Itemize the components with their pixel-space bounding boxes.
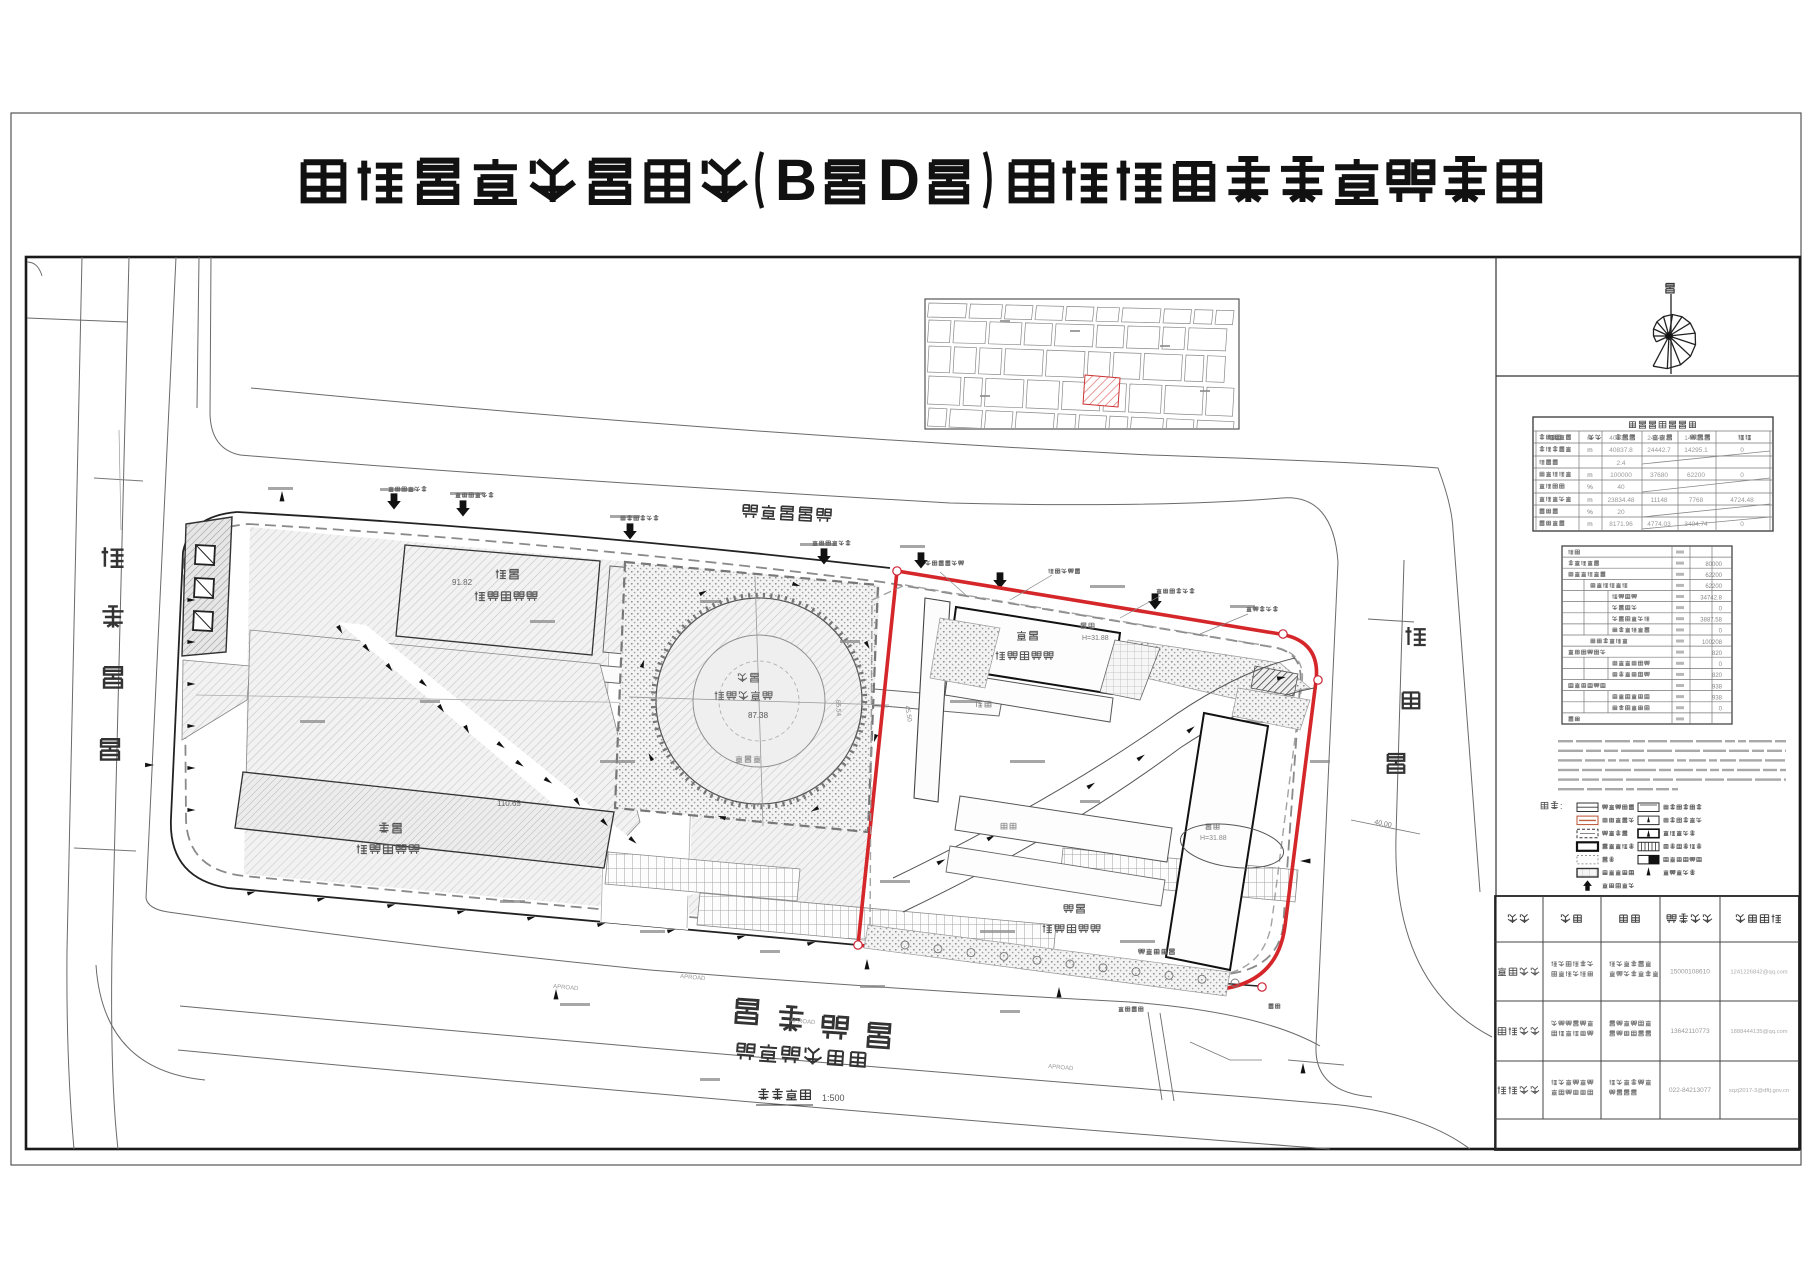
svg-text:0: 0 [1740,472,1744,479]
svg-text:87.38: 87.38 [748,711,769,720]
svg-text:3887.58: 3887.58 [1700,618,1722,624]
svg-text:m: m [1587,521,1592,528]
svg-text:24442.7: 24442.7 [1647,435,1671,442]
svg-text:80000: 80000 [1705,562,1722,568]
svg-text:0: 0 [1740,435,1744,442]
svg-text:0: 0 [1740,521,1744,528]
svg-text:0: 0 [1740,447,1744,454]
svg-text:20: 20 [1617,509,1625,516]
svg-text:938: 938 [1712,684,1723,690]
svg-text:37680: 37680 [1650,472,1668,479]
svg-text:11148: 11148 [1650,497,1667,504]
svg-text:1:500: 1:500 [822,1093,845,1103]
svg-text:820: 820 [1712,651,1723,657]
svg-text:13642110773: 13642110773 [1670,1028,1710,1035]
svg-text:100208: 100208 [1702,640,1723,646]
svg-text:938: 938 [1712,695,1723,701]
svg-text:m: m [1587,472,1592,479]
svg-text:H=31.88: H=31.88 [1200,835,1227,842]
svg-text:820: 820 [1712,673,1723,679]
svg-text::: : [1560,801,1563,811]
svg-text:4724.48: 4724.48 [1730,497,1754,504]
svg-text:14295.1: 14295.1 [1684,435,1708,442]
svg-text:24442.7: 24442.7 [1647,447,1671,454]
svg-text:sqzj2017-3@dftj.gov.cn: sqzj2017-3@dftj.gov.cn [1729,1088,1789,1094]
svg-text:15000108610: 15000108610 [1670,969,1710,976]
svg-text:m: m [1587,435,1592,442]
svg-text:14295.1: 14295.1 [1684,447,1708,454]
svg-text:%: % [1587,484,1593,491]
svg-text:2.4: 2.4 [1616,460,1625,467]
svg-text:022-84213077: 022-84213077 [1669,1087,1711,1094]
svg-text:40: 40 [1617,484,1625,491]
svg-text:8171.96: 8171.96 [1609,521,1633,528]
svg-text:65.54: 65.54 [834,700,842,717]
svg-text:91.82: 91.82 [452,578,473,587]
svg-text:23834.48: 23834.48 [1607,497,1634,504]
svg-text:100000: 100000 [1610,472,1632,479]
svg-text:40837.8: 40837.8 [1609,447,1633,454]
svg-text:1888444135@qq.com: 1888444135@qq.com [1730,1029,1787,1035]
svg-text:7768: 7768 [1689,497,1704,504]
svg-text:m: m [1587,447,1592,454]
svg-text:H=31.88: H=31.88 [1082,635,1109,642]
svg-text:62200: 62200 [1687,472,1705,479]
svg-text:62200: 62200 [1705,584,1722,590]
svg-text:m: m [1587,497,1592,504]
svg-text:%: % [1587,509,1593,516]
svg-text:62200: 62200 [1705,573,1722,579]
svg-text:B: B [775,148,817,213]
svg-text:110.65: 110.65 [497,799,521,808]
svg-text:D: D [878,148,920,213]
svg-text:1241226842@qq.com: 1241226842@qq.com [1730,970,1787,976]
svg-text:40837.8: 40837.8 [1609,435,1633,442]
svg-text:34742.8: 34742.8 [1700,595,1722,601]
